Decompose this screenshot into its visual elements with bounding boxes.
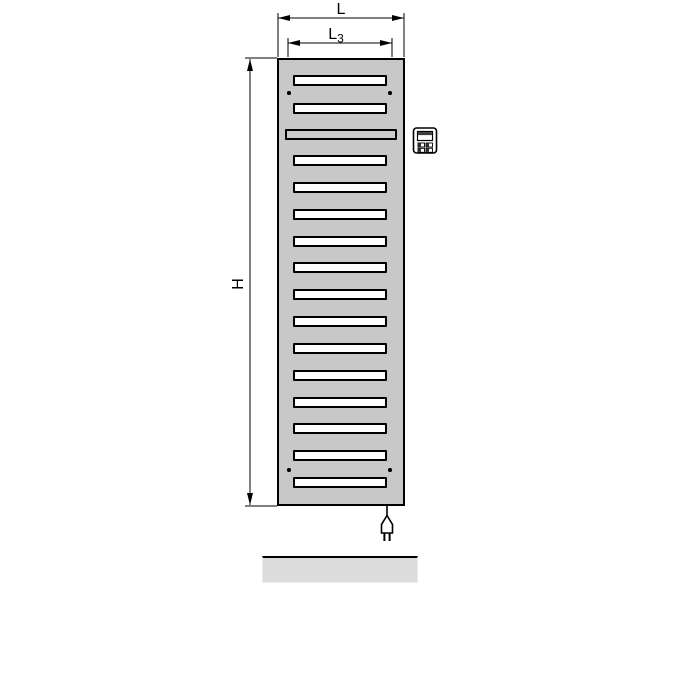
control-unit-icon [414, 128, 437, 153]
control-unit-display-band [418, 132, 432, 135]
plug-body [382, 516, 393, 534]
label-overall-height: H [230, 278, 247, 290]
dimension-overlay: L L3 H [0, 0, 700, 700]
dimension-overall-height [245, 58, 277, 506]
power-plug-icon [382, 506, 393, 541]
label-overall-width: L [337, 1, 346, 18]
technical-drawing-canvas: L L3 H [0, 0, 700, 700]
label-connection-width: L3 [328, 26, 344, 46]
